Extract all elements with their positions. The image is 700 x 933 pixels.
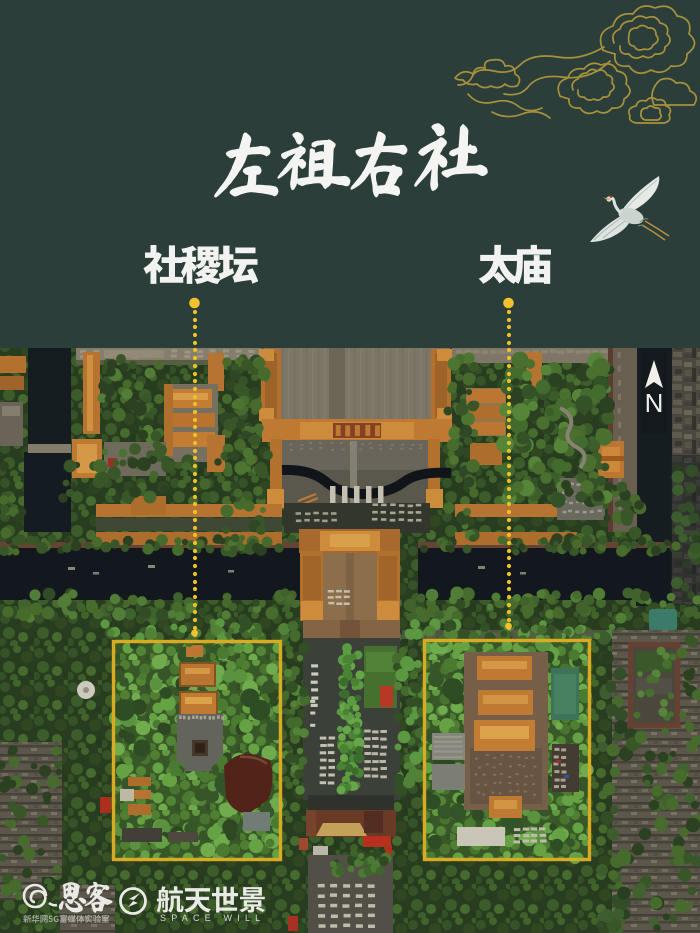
svg-text:SPACE WILL: SPACE WILL xyxy=(160,913,265,923)
svg-text:N: N xyxy=(645,388,664,418)
